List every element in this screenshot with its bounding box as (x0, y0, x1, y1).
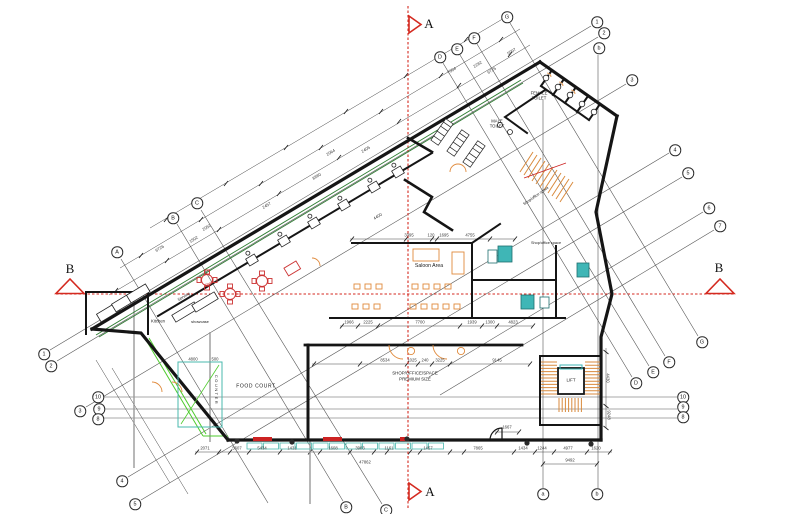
section-triangle-a-bottom (409, 483, 421, 500)
glazing-lines (96, 80, 523, 337)
interior-walls (86, 70, 601, 440)
double-door-arc (450, 164, 466, 172)
floor-plan-canvas: ABCDEFG12b34567DEFG1098123109845BCabFEMA… (0, 0, 807, 514)
section-triangle-b-left (56, 279, 84, 294)
section-triangle-a-top (409, 16, 421, 33)
reception-door-arc (312, 258, 320, 266)
plan-geometry (0, 0, 807, 514)
teal-fixtures (488, 246, 589, 309)
section-lines (56, 6, 734, 508)
outer-walls (92, 62, 617, 440)
duct-hatch (431, 119, 485, 167)
toilet-fixtures (498, 73, 597, 135)
grid-lines (50, 23, 714, 504)
lift-stairs (541, 362, 600, 412)
food-counter (178, 362, 222, 427)
dimension-lines (96, 14, 612, 494)
section-triangle-b-right (706, 279, 734, 294)
